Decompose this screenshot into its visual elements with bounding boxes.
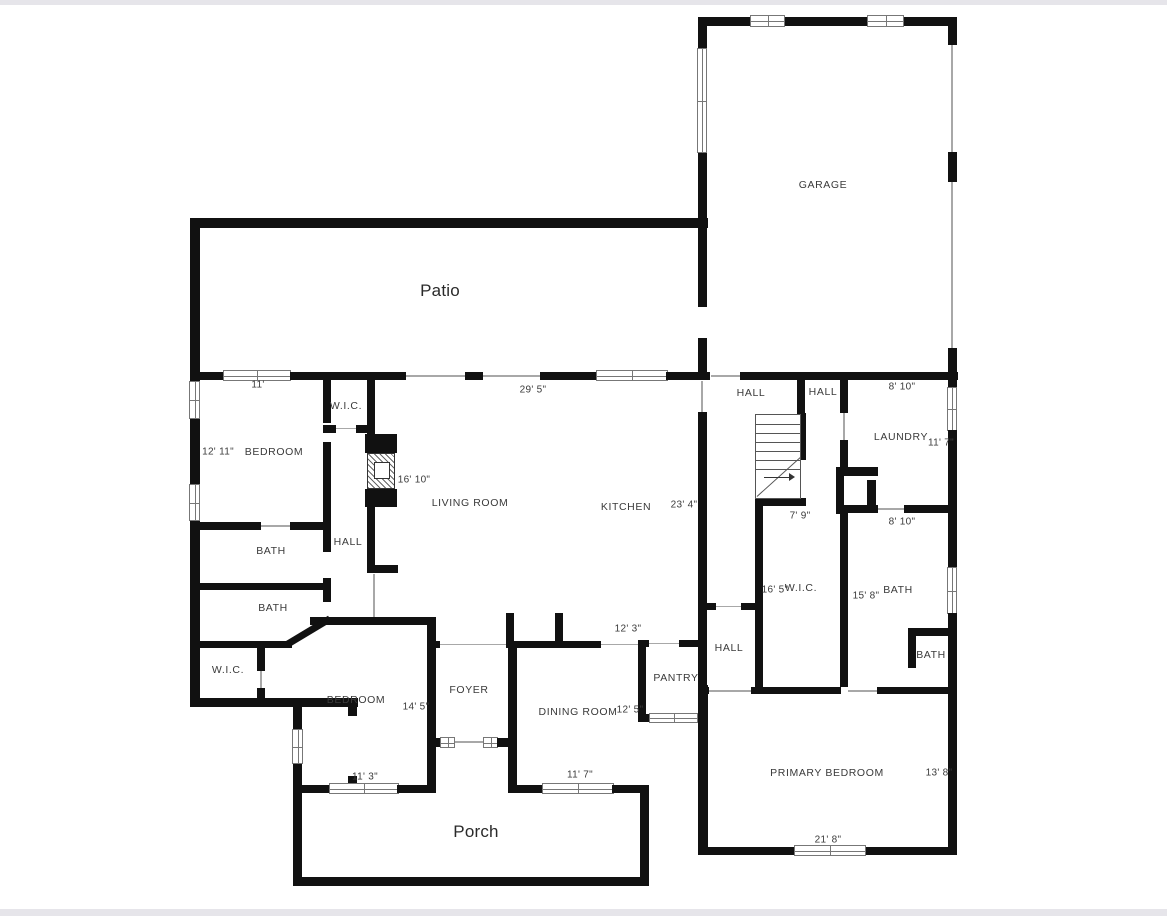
stair-tread [756,469,800,470]
wall-segment [700,603,716,610]
room-label-bath4: BATH [916,649,946,661]
wall-segment [293,785,332,793]
wall-segment [397,785,435,793]
wall-segment [290,372,406,380]
room-label-bedroom1: BEDROOM [245,446,303,458]
dimension-label: 11' 7" [928,438,954,449]
room-label-porch: Porch [453,822,498,842]
wall-segment [698,153,707,307]
opening-threshold-line [716,606,741,607]
wall-segment [506,641,601,648]
dimension-label: 7' 9" [790,511,811,522]
opening-threshold-line [601,644,638,645]
room-label-garage: GARAGE [799,179,848,191]
opening-threshold-line [260,671,262,688]
room-label-kitchen: KITCHEN [601,501,651,513]
wall-segment [948,348,957,389]
dimension-label: 12' 3" [615,624,642,635]
opening-threshold-line [951,182,953,348]
stair-tread [756,451,800,452]
stair-tread [756,424,800,425]
wall-segment [698,17,957,26]
opening-threshold-line [701,381,703,412]
room-label-bedroom2: BEDROOM [327,694,385,706]
opening-threshold-line [455,741,484,743]
wall-segment [679,640,700,647]
opening-threshold-line [406,375,465,377]
dimension-label: 29' 5" [520,385,547,396]
wall-segment [948,613,957,855]
opening-threshold-line [848,690,877,692]
dimension-label: 16' 5" [762,585,789,596]
dimension-label: 15' 8" [853,591,880,602]
window-glyph [440,737,455,748]
window-glyph [697,48,707,153]
window-glyph [947,567,957,614]
stair-tread [756,433,800,434]
wall-segment [190,641,292,648]
room-label-bath1: BATH [256,545,286,557]
stair-direction-arrow [764,477,790,478]
room-label-patio: Patio [420,281,460,301]
wall-segment [840,513,848,687]
wall-segment [760,687,841,694]
dimension-label: 12' 5" [617,705,644,716]
opening-threshold-line [373,574,375,617]
wall-segment [508,785,544,793]
stair-tread [756,442,800,443]
wall-segment [640,785,649,886]
wall-segment [840,440,848,468]
dimension-label: 23' 4" [671,500,698,511]
wall-segment [323,442,331,522]
fireplace-block-top [365,434,397,453]
window-glyph [542,783,614,794]
wall-segment [698,17,707,48]
dimension-label: 11' 3" [352,772,378,783]
dimension-label: 21' 8" [815,835,842,846]
opening-threshold-line [709,690,751,692]
bottom-frame-bar [0,909,1167,916]
room-label-hall4: HALL [715,642,744,654]
opening-threshold-line [483,375,540,377]
wall-segment [540,372,598,380]
room-label-wic-top: W.I.C. [330,400,362,412]
wall-segment [323,425,336,433]
diagonal-wall [285,616,331,648]
wall-segment [190,218,200,707]
wall-segment [740,372,958,380]
room-label-hall2: HALL [809,386,838,398]
dimension-label: 11' 7" [567,770,593,781]
wall-segment [666,372,710,380]
opening-threshold-line [843,413,845,440]
wall-segment [751,687,760,694]
wall-segment [293,877,649,886]
room-label-wic3: W.I.C. [785,582,817,594]
wall-segment [797,372,805,414]
wall-segment [948,17,957,45]
wall-segment [465,372,483,380]
wall-segment [367,378,375,436]
wall-segment [844,505,878,513]
wall-segment [840,372,848,413]
wall-segment [190,583,331,590]
wall-segment [323,529,331,552]
dimension-label: 8' 10" [889,382,916,393]
wall-segment [323,588,331,602]
room-label-living-room: LIVING ROOM [432,497,509,509]
room-label-hall3: HALL [334,536,363,548]
fireplace-block-bottom [365,489,397,507]
window-glyph [867,15,904,27]
wall-segment [908,628,916,668]
staircase [755,414,801,499]
wall-segment [427,738,441,747]
window-glyph [750,15,785,27]
window-glyph [292,729,303,764]
window-glyph [947,387,957,431]
stair-tread [756,460,800,461]
dimension-label: 8' 10" [889,517,916,528]
window-glyph [329,783,399,794]
stair-direction-arrowhead [789,473,795,481]
dimension-label: 14' 5" [403,702,430,713]
wall-segment [190,218,708,228]
dimension-label: 11' [251,380,264,391]
room-label-wic2: W.I.C. [212,664,244,676]
wall-segment [948,430,957,568]
wall-segment [877,687,957,694]
room-label-pantry: PANTRY [653,672,698,684]
wall-segment [367,565,398,573]
window-glyph [483,737,498,748]
wall-segment [948,152,957,182]
wall-segment [257,648,265,671]
wall-segment [190,522,261,530]
opening-threshold-line [261,525,290,527]
opening-threshold-line [711,375,740,377]
dimension-label: 13' 8" [926,768,953,779]
opening-threshold-line [649,643,679,644]
window-glyph [189,381,200,419]
room-label-hall1: HALL [737,387,766,399]
wall-segment [356,425,367,433]
opening-threshold-line [878,508,904,510]
opening-threshold-line [951,45,953,152]
floor-plan-canvas: GARAGE Patio W.I.C. BEDROOM LIVING ROOM … [0,0,1167,916]
opening-threshold-line [440,644,506,645]
room-label-laundry: LAUNDRY [874,431,928,443]
wall-segment [836,467,878,476]
fireplace-firebox [374,462,390,479]
room-label-dining-room: DINING ROOM [539,706,618,718]
room-label-bath3: BATH [883,584,913,596]
dimension-label: 16' 10" [398,475,431,486]
window-glyph [649,713,698,723]
dimension-label: 12' 11" [202,447,234,458]
wall-segment [367,507,375,567]
room-label-bath2: BATH [258,602,288,614]
room-label-foyer: FOYER [449,684,488,696]
top-frame-bar [0,0,1167,5]
window-glyph [596,370,668,381]
room-label-primary-bedroom: PRIMARY BEDROOM [770,767,884,779]
wall-segment [698,685,708,855]
opening-threshold-line [336,428,356,429]
window-glyph [794,845,866,856]
wall-segment [508,643,517,793]
wall-segment [698,412,707,688]
wall-segment [836,476,844,514]
window-glyph [189,484,200,521]
wall-segment [190,372,224,380]
